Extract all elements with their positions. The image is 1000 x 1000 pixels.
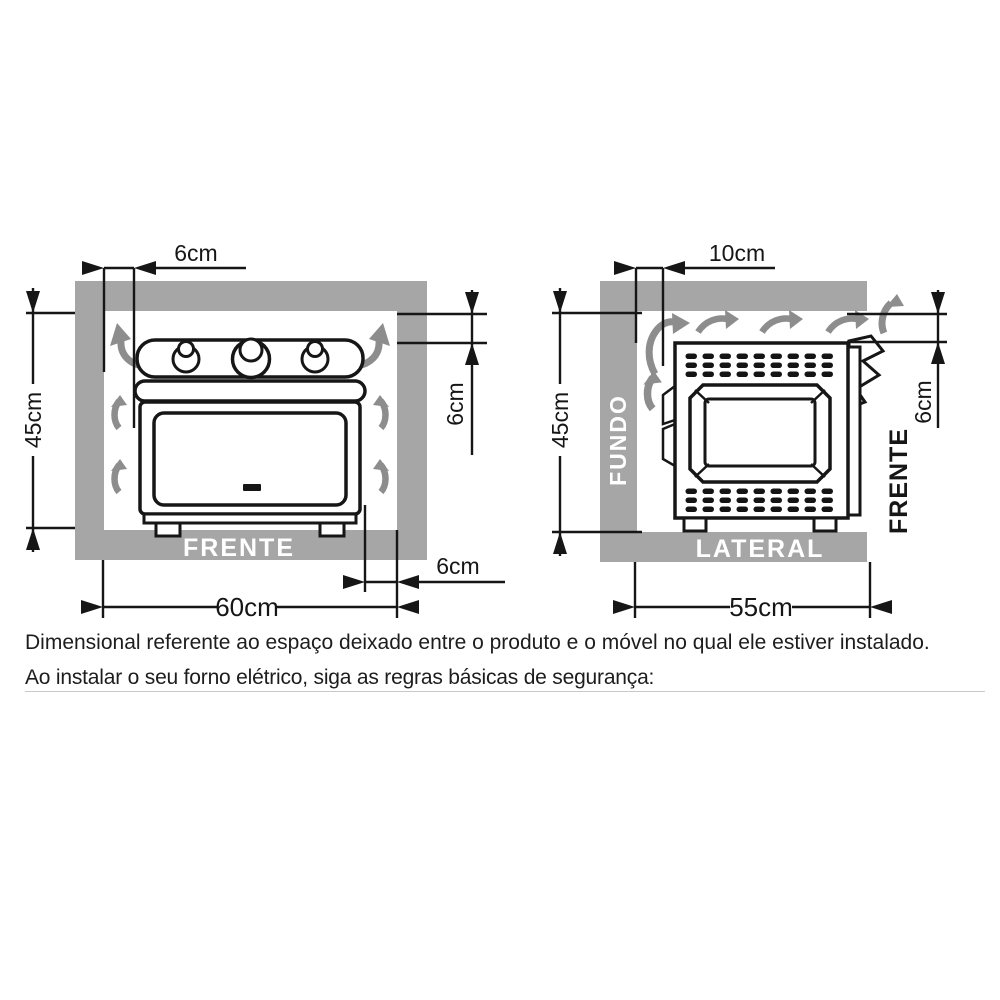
airflow-arrow-left-2 xyxy=(111,459,127,492)
dim-label-height: 45cm xyxy=(20,392,46,448)
front-view-diagram: FRENTE xyxy=(20,240,505,622)
arrow-body xyxy=(649,322,674,374)
arrowhead xyxy=(614,261,636,275)
side-front-label: FRENTE xyxy=(885,428,913,534)
arrowhead xyxy=(465,343,479,365)
arrowhead xyxy=(26,528,40,550)
oven-foot-right xyxy=(320,523,344,536)
airflow-arrow-back xyxy=(643,371,661,409)
airflow-arrow-top-1 xyxy=(698,310,739,332)
installation-diagram: FRENTE xyxy=(0,0,1000,630)
arrowhead xyxy=(397,575,419,589)
note-dimensional: Dimensional referente ao espaço deixado … xyxy=(25,631,930,655)
oven-foot-back xyxy=(684,518,706,531)
back-label: FUNDO xyxy=(605,394,631,486)
knob-right-cap xyxy=(308,342,323,357)
dim-label-top-gap: 10cm xyxy=(709,240,765,266)
dim-label-width: 55cm xyxy=(729,592,793,622)
front-view-label: FRENTE xyxy=(183,534,295,562)
arrowhead xyxy=(82,261,104,275)
arrowhead xyxy=(343,575,365,589)
arrowhead xyxy=(663,261,685,275)
arrowhead xyxy=(26,291,40,313)
dimension-width: 55cm xyxy=(613,562,892,622)
installation-clearance-page: FRENTE xyxy=(0,0,1000,1000)
front-door-panel xyxy=(848,347,860,515)
side-window xyxy=(705,399,815,466)
arrowhead xyxy=(397,600,419,614)
airflow-arrow-right-1 xyxy=(373,395,389,428)
back-hinge-lower xyxy=(663,424,675,466)
arrowhead xyxy=(613,600,635,614)
dimension-height: 45cm xyxy=(20,288,75,552)
frame-left-bar xyxy=(75,281,104,560)
horizontal-divider xyxy=(25,691,985,692)
dim-label-top-gap: 6cm xyxy=(174,240,217,266)
knob-left-cap xyxy=(179,342,194,357)
oven-side-view xyxy=(663,336,883,531)
arrowhead xyxy=(553,532,567,554)
door-latch-mark xyxy=(243,484,261,491)
dimension-width: 60cm xyxy=(81,560,419,622)
bottom-vents xyxy=(684,487,836,514)
airflow-arrow-right-2 xyxy=(373,459,389,492)
bottom-label: LATERAL xyxy=(696,535,825,563)
back-hinge-upper xyxy=(663,386,675,424)
arrowhead xyxy=(553,291,567,313)
airflow-arrow-left-1 xyxy=(111,395,127,428)
dim-label-width: 60cm xyxy=(215,592,279,622)
arrowhead xyxy=(465,292,479,314)
arrowhead xyxy=(672,313,690,334)
door-handle-bar xyxy=(135,381,365,401)
door-window xyxy=(154,413,346,505)
top-vents xyxy=(684,352,836,379)
dim-label-bottom-side-gap: 6cm xyxy=(436,553,479,579)
arrowhead xyxy=(931,342,945,364)
frame-right-bar xyxy=(397,281,427,560)
frame-top-bar xyxy=(75,281,427,311)
side-view-diagram: FUNDO LATERAL FRENTE xyxy=(547,240,947,622)
arrow-body xyxy=(882,303,891,333)
arrowhead xyxy=(931,292,945,314)
oven-foot-left xyxy=(156,523,180,536)
arrowhead xyxy=(81,600,103,614)
oven-foot-front xyxy=(814,518,836,531)
arrowhead xyxy=(870,600,892,614)
dim-label-height: 45cm xyxy=(547,392,573,448)
frame-top-bar xyxy=(600,281,867,311)
knob-center-cap xyxy=(240,339,262,361)
dim-label-right-gap: 6cm xyxy=(442,382,468,425)
note-safety-intro: Ao instalar o seu forno elétrico, siga a… xyxy=(25,666,654,690)
arrowhead xyxy=(134,261,156,275)
dim-label-front-gap: 6cm xyxy=(910,380,936,423)
airflow-arrow-top-2 xyxy=(762,310,803,332)
oven-front-view xyxy=(135,339,365,536)
